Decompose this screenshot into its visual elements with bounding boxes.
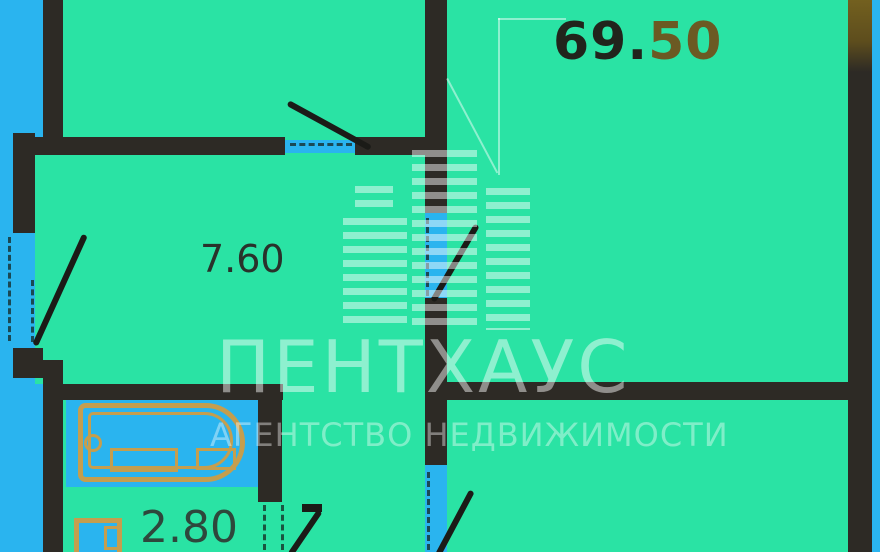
door-swing-top-room [290, 143, 352, 146]
label-total-area: 69.50 [553, 16, 723, 68]
door-swing-bathroom-b [281, 505, 284, 550]
bathtub-fitting-left [110, 448, 178, 472]
watermark-subtitle: АГЕНТСТВО НЕДВИЖИМОСТИ [210, 419, 729, 451]
wall-left-entrance-upper [13, 133, 35, 233]
door-swing-entrance-inner [31, 280, 34, 342]
label-total-area-int: 69. [553, 12, 648, 72]
door-swing-bottom-right-room [427, 472, 430, 550]
floor-plan-canvas: ПЕНТХАУС АГЕНТСТВО НЕДВИЖИМОСТИ 69.50 7.… [0, 0, 880, 552]
bathtub-drain-icon [84, 434, 102, 452]
sink-tap-icon [104, 526, 122, 550]
wall-left-top [43, 0, 63, 152]
door-swing-bathroom-a [263, 505, 266, 550]
watermark-tower-middle-icon [412, 150, 477, 330]
wall-top-room-bottom-left [13, 137, 285, 155]
door-swing-entrance-outer [8, 237, 11, 341]
watermark-tower-left-icon [343, 218, 407, 330]
watermark-tower-right-icon [486, 188, 530, 330]
watermark-title: ПЕНТХАУС [216, 331, 630, 403]
watermark-tower-small-icon [355, 186, 393, 210]
watermark-spire-vertical-line [498, 18, 500, 175]
label-total-area-frac: 50 [648, 12, 722, 72]
label-hallway-area: 7.60 [200, 240, 285, 278]
wall-right-outer [848, 0, 872, 552]
label-bath-hall-area: 2.80 [140, 506, 238, 550]
room-top-left-floor [63, 0, 425, 140]
